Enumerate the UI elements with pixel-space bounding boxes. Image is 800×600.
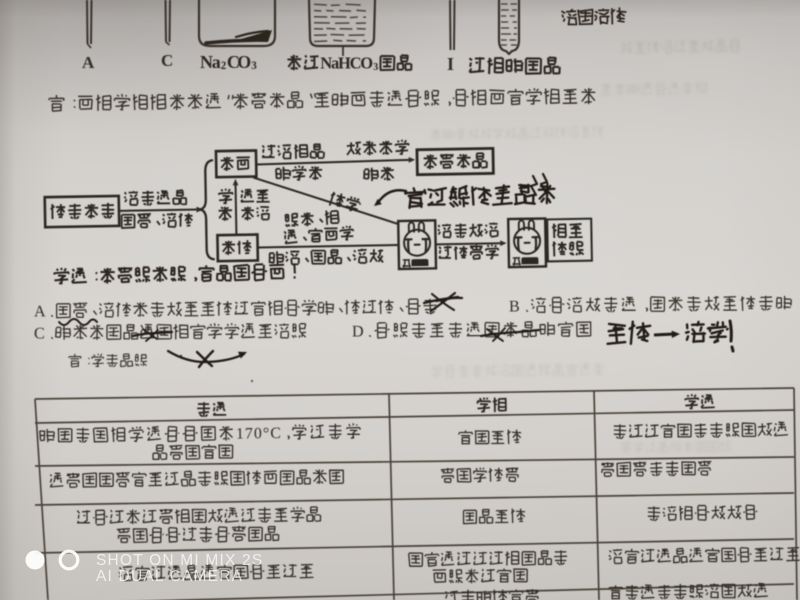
svg-text:3: 3 — [373, 62, 378, 73]
svg-text:AI DUAL CAMERA: AI DUAL CAMERA — [96, 568, 243, 585]
svg-text:A: A — [34, 302, 46, 320]
svg-text:B: B — [509, 297, 520, 315]
svg-text:C: C — [161, 51, 173, 70]
svg-text:D: D — [352, 322, 364, 340]
svg-text:3: 3 — [251, 60, 257, 72]
svg-text:NaHCO: NaHCO — [320, 54, 373, 73]
svg-text:A: A — [82, 53, 95, 72]
svg-text:Na: Na — [200, 52, 221, 72]
svg-text:CO: CO — [227, 52, 251, 72]
svg-text:170°C: 170°C — [236, 425, 281, 443]
svg-text:I: I — [447, 54, 454, 74]
svg-text:2: 2 — [221, 60, 227, 72]
svg-text:SHOT ON MI MIX 2S: SHOT ON MI MIX 2S — [96, 552, 263, 569]
svg-text:C: C — [34, 324, 45, 342]
